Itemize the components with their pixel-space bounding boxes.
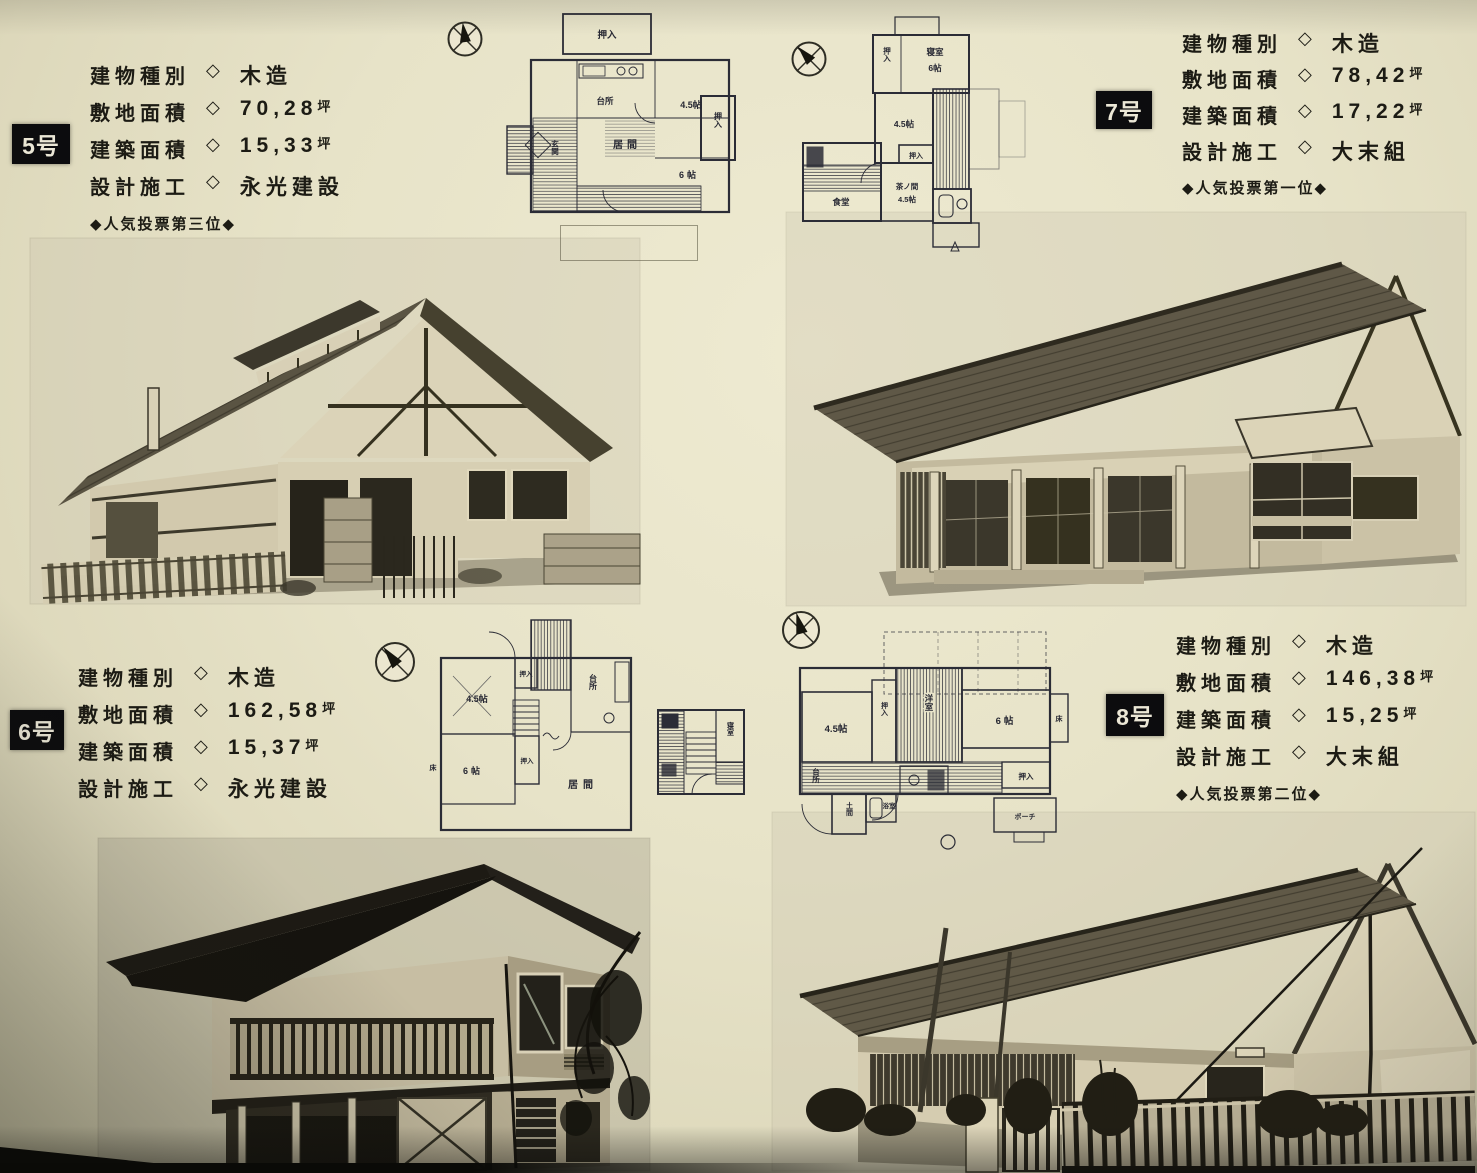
spec-value: 木造 [1332, 28, 1384, 58]
diamond-icon: ◇ [206, 171, 220, 192]
popularity-ranking: ◆人気投票第二位◆ [1176, 783, 1433, 804]
spec-label: 建築面積 [1182, 100, 1294, 129]
spec-row: 建物種別 ◇ 木造 [78, 662, 335, 685]
spec-unit: 坪 [317, 133, 330, 152]
spec-label: 建物種別 [90, 60, 202, 89]
room-label: 6帖 [928, 63, 942, 73]
house6-photo [96, 836, 652, 1173]
room-label: 寝室 [727, 721, 735, 737]
room-label: 押入 [520, 669, 534, 678]
spec-row: 敷地面積 ◇ 70,28 坪 [90, 97, 344, 120]
room-label: 浴室 [883, 801, 897, 810]
spec-row: 建物種別 ◇ 木造 [1176, 630, 1433, 653]
compass-7-icon [786, 36, 832, 82]
floor-plan-5: 押入 台所 4.5帖 居間 6帖 押入 玄関 [505, 8, 757, 240]
spec-value: 木造 [240, 60, 292, 90]
diamond-icon: ◇ [206, 97, 220, 118]
spec-value: 15,37 [228, 736, 306, 760]
room-label: 寝室 [925, 47, 944, 57]
room-label: 6帖 [679, 169, 699, 180]
spec-row: 敷地面積 ◇ 146,38 坪 [1176, 667, 1433, 690]
spec-value: 大末組 [1332, 136, 1410, 166]
spec-unit: 坪 [322, 698, 335, 717]
spec-value: 70,28 [240, 97, 318, 121]
floor-plan-6: 4.5帖 押入 台所 6帖 押入 居間 床 [425, 618, 653, 840]
house6-spec-block: 建物種別 ◇ 木造 敷地面積 ◇ 162,58 坪 建築面積 ◇ 15,37 坪… [78, 662, 335, 796]
room-label: 居間 [568, 779, 598, 791]
spec-label: 設計施工 [1176, 741, 1288, 770]
room-label: 茶ノ間 [895, 181, 919, 191]
spec-label: 設計施工 [90, 171, 202, 200]
spec-label: 設計施工 [78, 773, 190, 802]
spec-label: 敷地面積 [90, 97, 202, 126]
room-label: 6帖 [463, 765, 483, 776]
room-label: 押入 [882, 46, 891, 63]
room-label: 6帖 [996, 715, 1017, 727]
house5-photo [28, 236, 642, 608]
spec-value: 永光建設 [228, 773, 332, 803]
diamond-icon: ◇ [194, 736, 208, 757]
room-label: 4.5帖 [894, 119, 915, 129]
room-label: ポーチ [1015, 812, 1036, 821]
spec-row: 設計施工 ◇ 永光建設 [78, 773, 335, 796]
room-label: 4.5帖 [466, 693, 488, 704]
room-label: 押入 [909, 151, 923, 160]
diamond-icon: ◇ [1298, 64, 1312, 85]
spec-label: 建築面積 [78, 736, 190, 765]
popularity-ranking: ◆人気投票第一位◆ [1182, 177, 1422, 198]
spec-row: 建築面積 ◇ 15,25 坪 [1176, 704, 1433, 727]
spec-row: 設計施工 ◇ 大末組 [1182, 136, 1422, 159]
diamond-icon: ◇ [1298, 28, 1312, 49]
compass-5-icon [442, 16, 488, 62]
spec-label: 建築面積 [90, 134, 202, 163]
spec-value: 木造 [228, 662, 280, 692]
spec-value: 大末組 [1326, 741, 1404, 771]
spec-row: 建築面積 ◇ 15,37 坪 [78, 736, 335, 759]
room-label: 4.5帖 [825, 723, 848, 735]
house5-number-badge: 5号 [12, 124, 70, 164]
spec-value: 15,33 [240, 134, 318, 158]
catalog-page: 建物種別 ◇ 木造 敷地面積 ◇ 70,28 坪 建築面積 ◇ 15,33 坪 … [0, 0, 1477, 1173]
room-label: 台所 [596, 96, 614, 106]
compass-6-icon [370, 637, 420, 687]
diamond-icon: ◇ [1292, 630, 1306, 651]
room-label: 土間 [846, 801, 854, 817]
diamond-icon: ◇ [1292, 704, 1306, 725]
room-label: 洋室 [924, 693, 934, 712]
house7-photo [784, 210, 1468, 608]
room-label: 床 [1056, 714, 1064, 723]
house8-number-badge: 8号 [1106, 694, 1164, 736]
floor-plan-6-upper: 寝室 [652, 704, 750, 800]
diamond-icon: ◇ [1292, 667, 1306, 688]
spec-unit: 坪 [1409, 99, 1422, 118]
diamond-icon: ◇ [1298, 100, 1312, 121]
room-label: 押入 [881, 701, 890, 717]
spec-label: 建築面積 [1176, 704, 1288, 733]
diamond-icon: ◇ [1298, 136, 1312, 157]
spec-value: 146,38 [1326, 667, 1420, 691]
room-label: 4.5帖 [680, 99, 702, 110]
floor-plan-8: 4.5帖 押入 洋室 6帖 床 台所 土間 浴室 押入 ポーチ [788, 628, 1080, 854]
room-label: 台所 [811, 767, 820, 785]
spec-label: 敷地面積 [1176, 667, 1288, 696]
spec-row: 建築面積 ◇ 17,22 坪 [1182, 100, 1422, 123]
house6-number-badge: 6号 [10, 710, 64, 750]
room-label: 押入 [714, 111, 723, 129]
house7-spec-block: 建物種別 ◇ 木造 敷地面積 ◇ 78,42 坪 建築面積 ◇ 17,22 坪 … [1182, 28, 1422, 198]
spec-value: 15,25 [1326, 704, 1404, 728]
spec-label: 敷地面積 [1182, 64, 1294, 93]
room-label: 食堂 [832, 197, 850, 207]
spec-unit: 坪 [1409, 63, 1422, 82]
room-label: 押入 [521, 756, 535, 765]
room-label: 押入 [597, 29, 617, 41]
spec-row: 建物種別 ◇ 木造 [1182, 28, 1422, 51]
spec-unit: 坪 [317, 96, 330, 115]
diamond-icon: ◇ [1292, 741, 1306, 762]
spec-label: 建物種別 [1176, 630, 1288, 659]
diamond-icon: ◇ [206, 60, 220, 81]
spec-row: 設計施工 ◇ 大末組 [1176, 741, 1433, 764]
room-label: 床 [430, 763, 438, 772]
popularity-ranking: ◆人気投票第三位◆ [90, 213, 344, 234]
spec-value: 木造 [1326, 630, 1378, 660]
spec-row: 敷地面積 ◇ 78,42 坪 [1182, 64, 1422, 87]
spec-row: 敷地面積 ◇ 162,58 坪 [78, 699, 335, 722]
room-label: 押入 [1019, 771, 1035, 781]
spec-value: 17,22 [1332, 100, 1410, 124]
spec-unit: 坪 [305, 735, 318, 754]
spec-value: 永光建設 [240, 171, 344, 201]
room-label: 玄関 [550, 139, 559, 157]
room-label: 居間 [613, 139, 641, 151]
spec-value: 162,58 [228, 699, 322, 723]
diamond-icon: ◇ [194, 699, 208, 720]
house7-number-badge: 7号 [1096, 91, 1152, 129]
diamond-icon: ◇ [194, 662, 208, 683]
spec-unit: 坪 [1420, 666, 1433, 685]
diamond-icon: ◇ [194, 773, 208, 794]
room-label: 4.5帖 [898, 194, 916, 204]
diamond-icon: ◇ [206, 134, 220, 155]
spec-row: 建物種別 ◇ 木造 [90, 60, 344, 83]
spec-row: 設計施工 ◇ 永光建設 [90, 171, 344, 194]
spec-label: 設計施工 [1182, 136, 1294, 165]
room-label: 台所 [589, 673, 598, 691]
spec-unit: 坪 [1403, 703, 1416, 722]
spec-row: 建築面積 ◇ 15,33 坪 [90, 134, 344, 157]
spec-value: 78,42 [1332, 64, 1410, 88]
house8-photo [770, 810, 1477, 1173]
spec-label: 建物種別 [1182, 28, 1294, 57]
house5-spec-block: 建物種別 ◇ 木造 敷地面積 ◇ 70,28 坪 建築面積 ◇ 15,33 坪 … [90, 60, 344, 234]
spec-label: 建物種別 [78, 662, 190, 691]
compass-8-icon [777, 606, 825, 654]
spec-label: 敷地面積 [78, 699, 190, 728]
scan-edge-shadow [0, 1163, 857, 1173]
house8-spec-block: 建物種別 ◇ 木造 敷地面積 ◇ 146,38 坪 建築面積 ◇ 15,25 坪… [1176, 630, 1433, 804]
